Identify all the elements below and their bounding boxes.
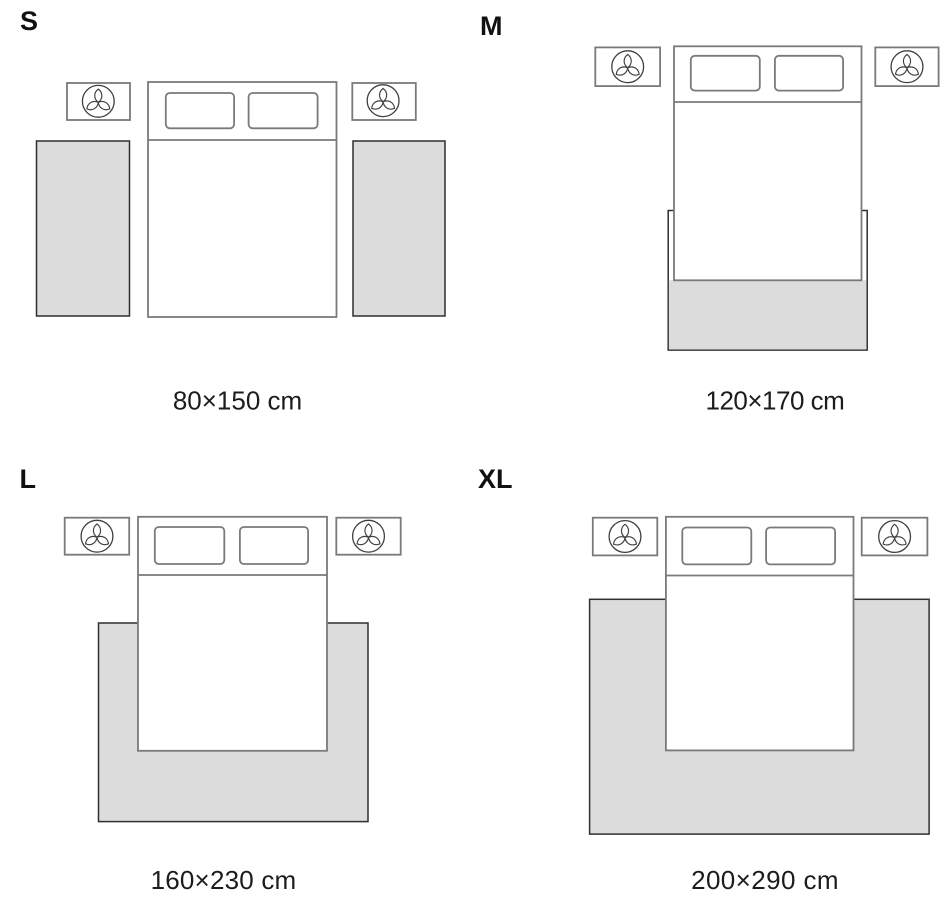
svg-text:L: L (20, 464, 37, 494)
svg-text:200×290 cm: 200×290 cm (691, 865, 839, 895)
svg-text:80×150 cm: 80×150 cm (173, 386, 302, 416)
svg-text:120×170 cm: 120×170 cm (705, 386, 844, 416)
svg-text:S: S (20, 6, 38, 36)
svg-text:160×230 cm: 160×230 cm (151, 865, 297, 895)
svg-text:M: M (480, 11, 503, 41)
svg-text:XL: XL (478, 464, 513, 494)
